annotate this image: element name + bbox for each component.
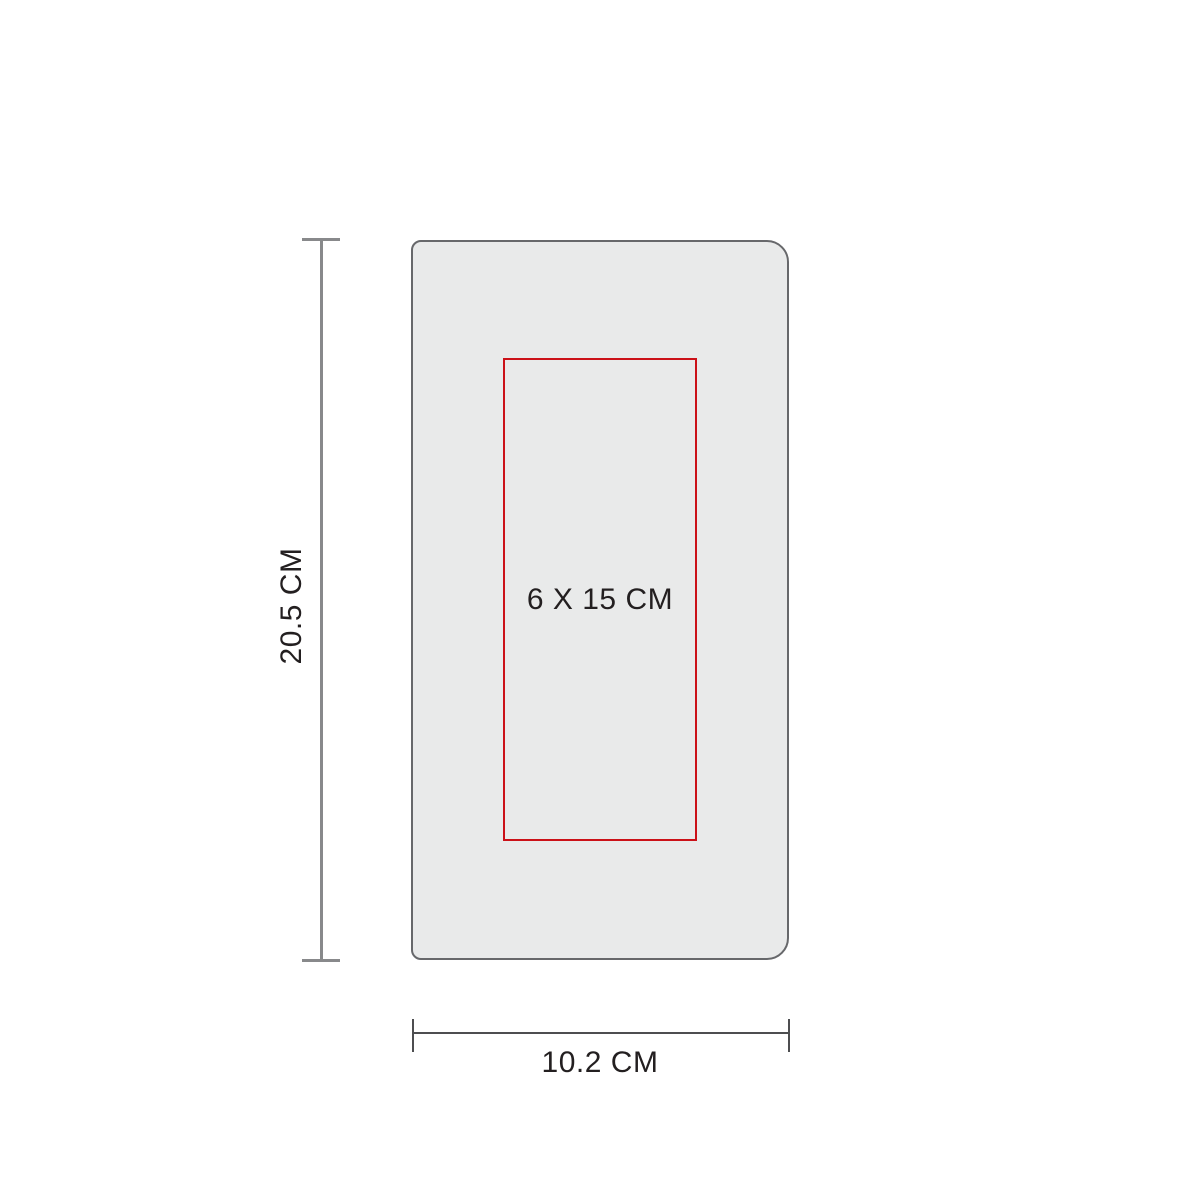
width-dimension-tick-left — [412, 1019, 414, 1052]
height-dimension-tick-bottom — [302, 959, 340, 962]
width-dimension-tick-right — [788, 1019, 790, 1052]
print-area-size-label: 6 X 15 CM — [527, 583, 673, 617]
height-dimension-label: 20.5 CM — [275, 548, 309, 665]
height-dimension-tick-top — [302, 238, 340, 241]
width-dimension-label: 10.2 CM — [542, 1046, 659, 1080]
print-area-rect: 6 X 15 CM — [503, 358, 697, 841]
height-dimension-line — [320, 238, 323, 962]
spec-diagram-canvas: 6 X 15 CM 20.5 CM 10.2 CM — [0, 0, 1200, 1200]
width-dimension-line — [412, 1032, 790, 1034]
